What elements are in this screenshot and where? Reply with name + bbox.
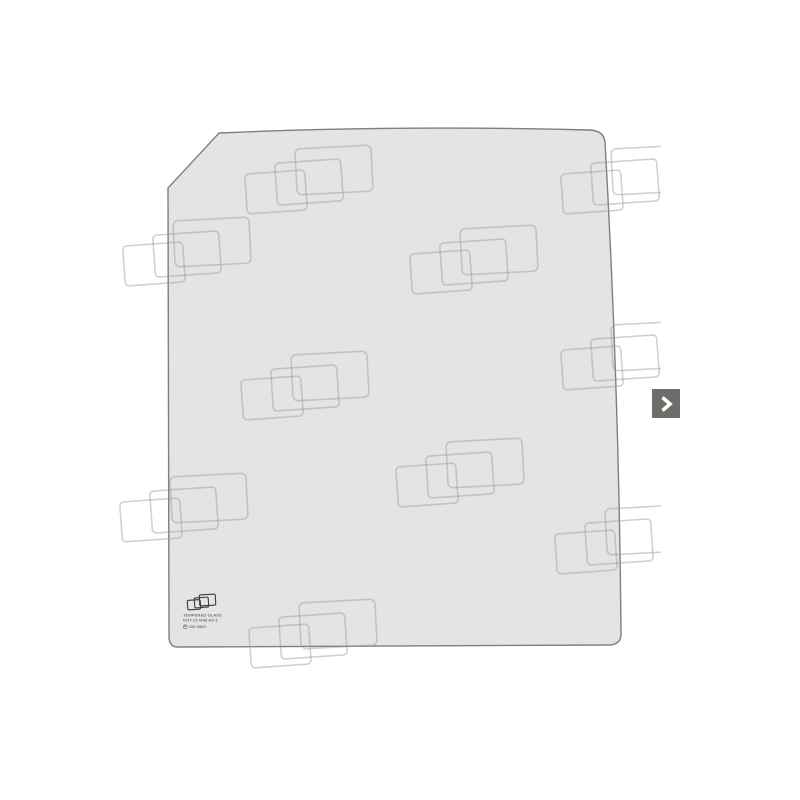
next-image-button[interactable] [652,389,680,418]
etching-code: GB 9963 [189,625,206,630]
chevron-right-icon [658,395,674,413]
etching-line3: E GB 9963 [183,625,218,630]
overlapping-rectangles-logo-icon [186,592,218,613]
glass-etching-stamp: TEMPERED GLASS DOT-29 M98 AS-1 E GB 9963 [183,592,253,646]
glass-panel [168,128,621,647]
e-certification-mark-icon: E [183,625,188,630]
product-photo [0,0,800,800]
etching-line2: DOT-29 M98 AS-1 [183,618,218,623]
etching-text: TEMPERED GLASS DOT-29 M98 AS-1 E GB 9963 [183,613,218,629]
product-image-viewer: TEMPERED GLASS DOT-29 M98 AS-1 E GB 9963 [0,0,800,800]
